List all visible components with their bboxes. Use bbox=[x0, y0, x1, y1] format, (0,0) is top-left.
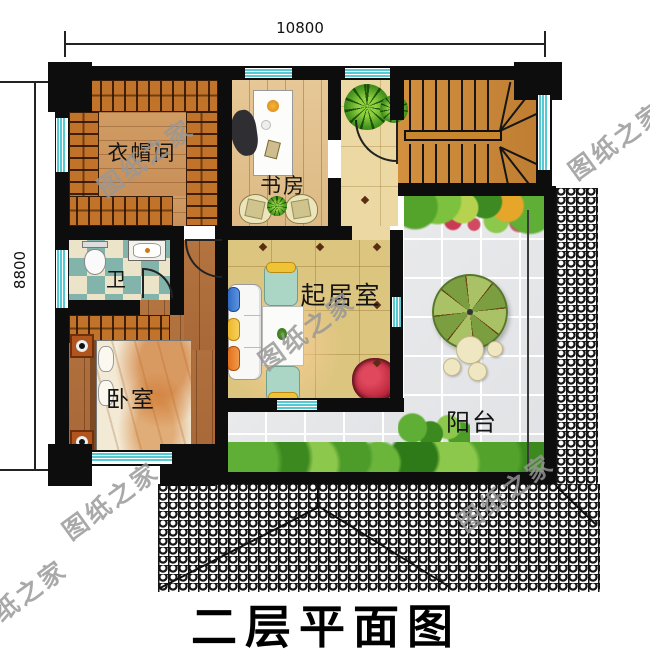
wall-balcony-right bbox=[544, 186, 556, 484]
wall-cloak-study bbox=[218, 80, 232, 232]
bed-pillow bbox=[98, 346, 114, 372]
patio-seat bbox=[487, 341, 503, 357]
wall-stair-stub bbox=[390, 80, 404, 120]
room-label-balcony: 阳台 bbox=[446, 403, 498, 438]
toilet-bowl bbox=[84, 249, 106, 275]
desk-fruit-bowl bbox=[267, 100, 279, 112]
armchair-cushion bbox=[291, 199, 312, 220]
watermark: 图纸之家 bbox=[560, 93, 650, 188]
wall-study-east-lower bbox=[328, 178, 341, 240]
room-label-bathroom: 卫 bbox=[106, 264, 128, 293]
window-study-top bbox=[245, 68, 292, 78]
stair-treads-lower bbox=[398, 144, 498, 183]
dim-label-top: 10800 bbox=[276, 19, 324, 37]
wardrobe-bottom bbox=[69, 196, 173, 226]
dim-line-top bbox=[65, 43, 545, 45]
armchair-bolster bbox=[266, 262, 296, 273]
sofa-cushion-blue bbox=[227, 287, 240, 312]
dim-tick-top-right bbox=[544, 31, 546, 57]
sofa-cushion-yellow bbox=[227, 318, 240, 341]
dim-ext-left-bottom bbox=[0, 469, 48, 471]
toilet-tank bbox=[82, 241, 108, 248]
patio-seat bbox=[468, 362, 487, 381]
window-hall-top bbox=[345, 68, 390, 78]
armchair-cushion bbox=[244, 198, 265, 219]
stair-handrail bbox=[404, 130, 502, 141]
sink-drain bbox=[145, 248, 150, 253]
stair-treads-upper bbox=[398, 80, 498, 132]
dim-tick-top-left bbox=[64, 31, 66, 57]
watermark: 图纸之家 bbox=[0, 551, 74, 646]
roof-right bbox=[556, 188, 598, 484]
patio-seat bbox=[443, 358, 461, 376]
floor-plan-canvas: 10800 8800 bbox=[0, 0, 650, 661]
roof-ridge-stub bbox=[317, 484, 319, 508]
sofa-seat-line bbox=[244, 315, 261, 316]
dim-ext-left-top bbox=[0, 81, 50, 83]
nightstand-lamp bbox=[76, 340, 88, 352]
window-cloakroom-left bbox=[56, 118, 68, 172]
window-stairs-right bbox=[538, 95, 550, 170]
wall-bedroom-se bbox=[160, 444, 215, 486]
sofa-cushion-orange bbox=[227, 346, 240, 371]
patio-table bbox=[456, 336, 484, 364]
window-living-bottom bbox=[277, 400, 317, 410]
wall-mid-band-west bbox=[55, 226, 178, 240]
dim-line-left bbox=[34, 82, 36, 470]
parasol-pole bbox=[467, 309, 473, 315]
drawing-title: 二层平面图 bbox=[191, 591, 461, 657]
window-bathroom-left bbox=[56, 250, 68, 308]
wall-stairs-bottom bbox=[398, 183, 544, 196]
window-living-east bbox=[392, 297, 401, 327]
roof-bottom bbox=[158, 484, 600, 592]
room-label-bedroom: 卧室 bbox=[106, 380, 156, 414]
balcony-edge-line bbox=[527, 210, 529, 472]
desk-plate bbox=[261, 120, 271, 130]
dim-label-left: 8800 bbox=[11, 251, 29, 289]
wall-top bbox=[55, 66, 556, 80]
wall-bath-right bbox=[170, 226, 184, 315]
room-label-study: 书房 bbox=[260, 170, 306, 200]
wall-study-east-upper bbox=[328, 80, 341, 140]
